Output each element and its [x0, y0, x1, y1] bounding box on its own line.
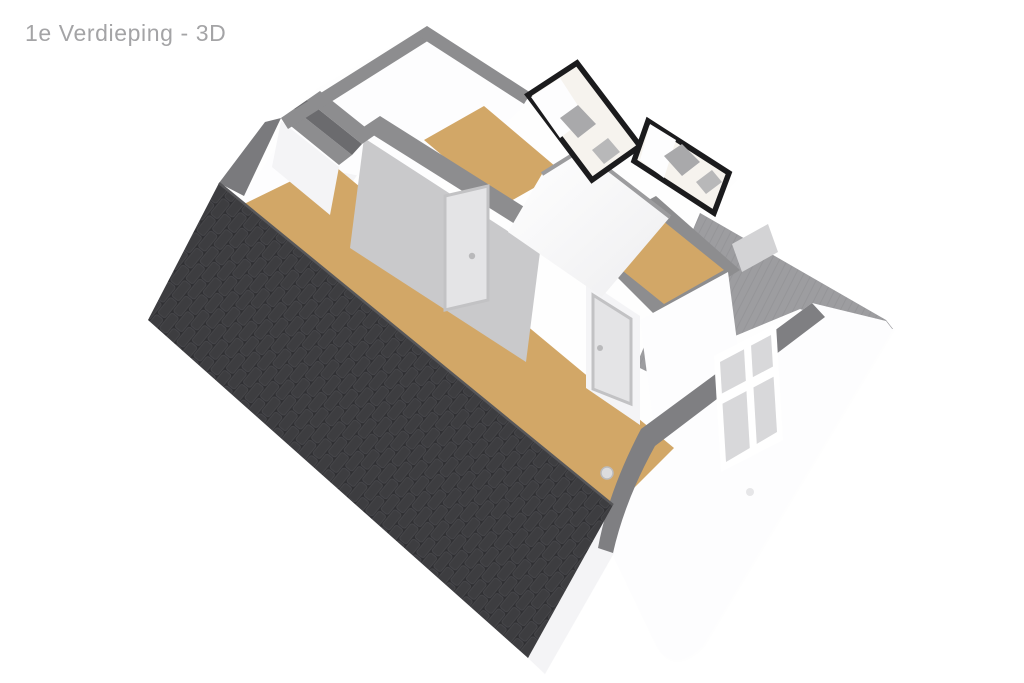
gutter-ornament [601, 467, 613, 479]
floorplan-3d-render: 1e Verdieping - 3D [0, 0, 1024, 683]
page-title: 1e Verdieping - 3D [25, 20, 226, 47]
interior-door-1 [445, 186, 488, 310]
house-3d-scene [0, 0, 1024, 683]
wall-vent [746, 488, 754, 496]
